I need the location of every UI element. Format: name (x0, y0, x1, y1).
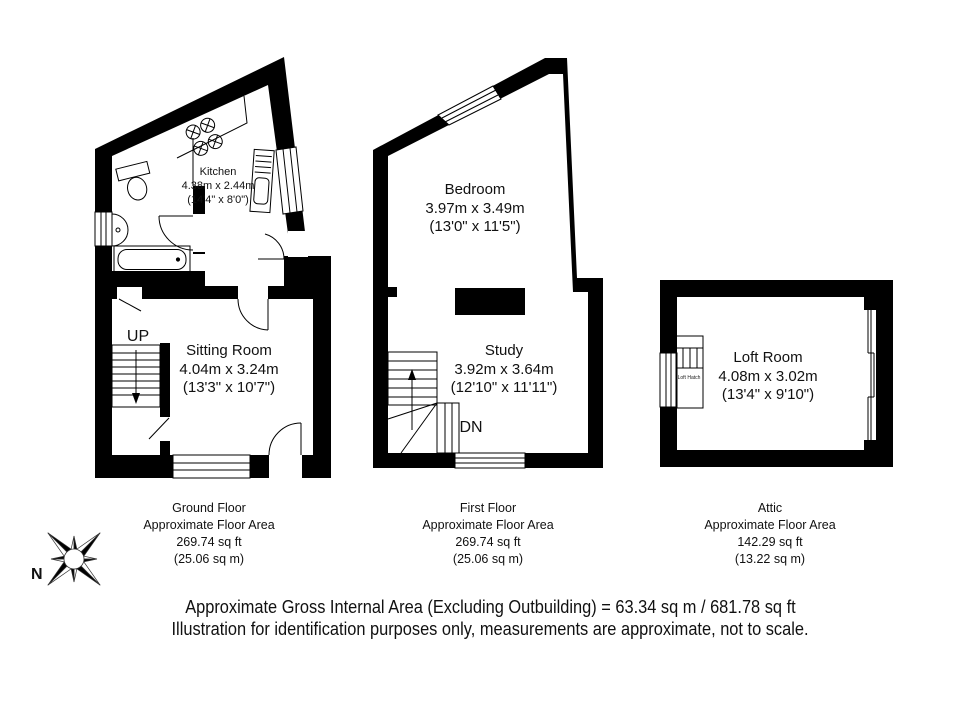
disclaimer-text: Illustration for identification purposes… (171, 619, 808, 640)
ground-floor-caption: Ground Floor Approximate Floor Area 269.… (143, 500, 274, 568)
bathroom-window (95, 212, 112, 246)
sitting-room-dims-ft: (13'3" x 10'7") (179, 379, 278, 398)
study-name: Study (451, 342, 558, 361)
disclaimer-line: Illustration for identification purposes… (0, 619, 980, 640)
study-dims-ft: (12'10" x 11'11") (451, 379, 558, 398)
bedroom-label: Bedroom 3.97m x 3.49m (13'0" x 11'5") (425, 181, 524, 237)
floorplan-page: Kitchen 4.38m x 2.44m (14'4" x 8'0") Sit… (0, 0, 980, 702)
ground-floor-area-m: (25.06 sq m) (143, 551, 274, 568)
first-floor-sub: Approximate Floor Area (422, 517, 553, 534)
study-label: Study 3.92m x 3.64m (12'10" x 11'11") (451, 342, 558, 398)
bedroom-dims-ft: (13'0" x 11'5") (425, 218, 524, 237)
ground-floor-title: Ground Floor (143, 500, 274, 517)
loft-room-label: Loft Room 4.08m x 3.02m (13'4" x 9'10") (718, 349, 817, 405)
bedroom-dims-m: 3.97m x 3.49m (425, 200, 524, 219)
sitting-room-dims-m: 4.04m x 3.24m (179, 361, 278, 380)
loft-room-dims-m: 4.08m x 3.02m (718, 368, 817, 387)
bedroom-name: Bedroom (425, 181, 524, 200)
sitting-room-label: Sitting Room 4.04m x 3.24m (13'3" x 10'7… (179, 342, 278, 398)
compass-center (64, 549, 84, 569)
wall-stub (388, 287, 397, 297)
ground-floor-sub: Approximate Floor Area (143, 517, 274, 534)
study-dims-m: 3.92m x 3.64m (451, 361, 558, 380)
kitchen-name: Kitchen (182, 165, 255, 179)
eaves-stub-top (864, 297, 876, 310)
compass-rose (48, 533, 100, 585)
north-label: N (31, 567, 43, 583)
chimney-breast (455, 288, 525, 315)
first-floor-caption: First Floor Approximate Floor Area 269.7… (422, 500, 553, 568)
loft-room-name: Loft Room (718, 349, 817, 368)
kitchen-dims-m: 4.38m x 2.44m (182, 179, 255, 193)
attic-window (660, 353, 677, 407)
sitting-room-window (173, 455, 250, 478)
first-floor-plan (373, 58, 603, 468)
kitchen-dims-ft: (14'4" x 8'0") (182, 193, 255, 207)
attic-caption: Attic Approximate Floor Area 142.29 sq f… (704, 500, 835, 568)
attic-title: Attic (704, 500, 835, 517)
first-floor-title: First Floor (422, 500, 553, 517)
loft-hatch-label: Loft Hatch (678, 375, 701, 381)
first-floor-area-m: (25.06 sq m) (422, 551, 553, 568)
ground-floor-area-ft: 269.74 sq ft (143, 534, 274, 551)
attic-area-m: (13.22 sq m) (704, 551, 835, 568)
first-floor-area-ft: 269.74 sq ft (422, 534, 553, 551)
entry-step-wall (284, 256, 313, 286)
eaves-stub-bottom (864, 440, 876, 453)
stairs-down-label: DN (459, 420, 482, 436)
kitchen-label: Kitchen 4.38m x 2.44m (14'4" x 8'0") (182, 165, 255, 207)
sitting-room-name: Sitting Room (179, 342, 278, 361)
ground-floor-plan (95, 57, 331, 478)
gross-area-text: Approximate Gross Internal Area (Excludi… (185, 597, 795, 618)
gross-area-line: Approximate Gross Internal Area (Excludi… (0, 597, 980, 618)
attic-area-ft: 142.29 sq ft (704, 534, 835, 551)
loft-room-dims-ft: (13'4" x 9'10") (718, 386, 817, 405)
attic-sub: Approximate Floor Area (704, 517, 835, 534)
stairs-up-label: UP (127, 329, 149, 345)
study-window (455, 453, 525, 468)
